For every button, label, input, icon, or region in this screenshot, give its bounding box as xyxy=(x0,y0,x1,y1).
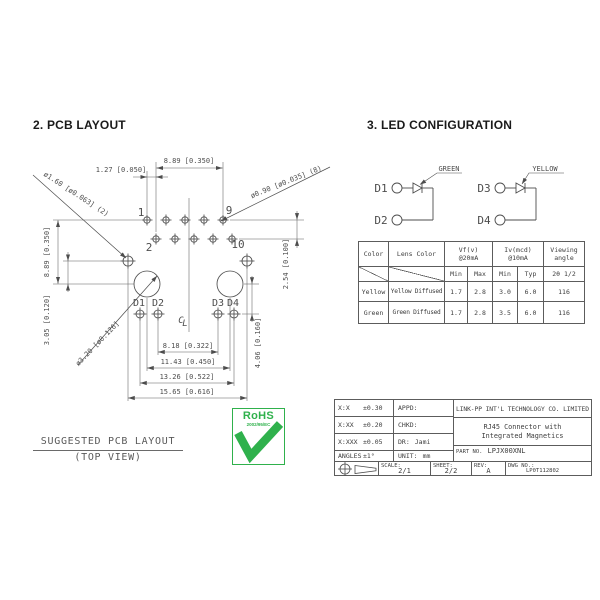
dim-hole-gap-label: 3.05 [0.120] xyxy=(43,295,51,346)
tol-label: X:XX xyxy=(338,421,363,429)
subheader-vf-min: Min xyxy=(445,267,468,282)
dim-led-drop-label: 4.06 [0.160] xyxy=(254,318,262,369)
d2-circuit-label: D2 xyxy=(374,214,387,227)
led-section-title: 3. LED CONFIGURATION xyxy=(367,118,512,132)
dim-pad-hole-label: ø0.90 [ø0.035] (8) xyxy=(250,164,323,200)
part-number-value: LPJX00XNL xyxy=(488,447,526,455)
row-yellow-lens: Yellow Diffused xyxy=(389,282,445,302)
pin-pads-row2 xyxy=(151,234,238,245)
dim-small-hole-label: ø1.60 [ø0.063] (2) xyxy=(42,170,110,218)
centerline-l: L xyxy=(182,319,187,329)
viewing-label: Viewing xyxy=(550,246,577,254)
d4-circuit-label: D4 xyxy=(477,214,491,227)
dimension-lines xyxy=(53,162,304,401)
tol-label: ANGLES xyxy=(338,452,363,460)
d3-pad-label: D3 xyxy=(212,298,224,309)
dr-value: Jami xyxy=(415,438,431,446)
led-characteristics-table: Color Lens Color Vf(v) @20mA Iv(mcd) @10… xyxy=(358,241,585,324)
col-header-lens-color: Lens Color xyxy=(389,242,445,267)
leader-lines xyxy=(33,167,330,365)
pin2-label: 2 xyxy=(146,241,153,254)
col-header-color: Color xyxy=(359,242,389,267)
vf-condition: @20mA xyxy=(459,254,479,262)
tol-value: ±0.30 xyxy=(363,404,383,412)
dim-left-span-label: 8.89 [0.350] xyxy=(43,227,51,278)
row-yellow-iv-min: 3.0 xyxy=(493,282,518,302)
subheader-iv-typ: Typ xyxy=(518,267,544,282)
part-number-cell: PART NO.LPJX00XNL xyxy=(454,446,591,461)
rohs-logo: RoHS 2002/95/EC xyxy=(232,408,285,465)
product-description: RJ45 Connector with Integrated Magnetics xyxy=(454,418,591,446)
col-header-iv: Iv(mcd) @10mA xyxy=(493,242,544,267)
dr-label: DR: xyxy=(398,438,410,446)
leader-post-hole xyxy=(78,276,157,365)
dim-row-pitch-label: 2.54 [0.100] xyxy=(282,239,290,290)
row-yellow-color: Yellow xyxy=(359,282,389,302)
dim-post-hole-label: ø3.20 [ø0.126] xyxy=(74,320,121,368)
leader-small-hole xyxy=(33,175,126,258)
tolerance-row-1: X:X±0.30 xyxy=(335,400,394,417)
centerline-c: C xyxy=(178,316,184,326)
row-yellow-angle: 116 xyxy=(544,282,584,302)
leader-pad-hole xyxy=(221,167,330,221)
tol-label: X:XXX xyxy=(338,438,363,446)
company-name: LINK-PP INT'L TECHNOLOGY CO. LIMITED xyxy=(454,400,591,418)
tol-value: ±0.20 xyxy=(363,421,383,429)
dim-led-outer-label: 13.26 [0.522] xyxy=(160,373,215,381)
tolerance-row-3: X:XXX±0.05 xyxy=(335,434,394,451)
dim-led-inner-label: 8.18 [0.322] xyxy=(163,342,214,350)
d4-pad-label: D4 xyxy=(227,298,239,309)
subheader-vf-max: Max xyxy=(468,267,493,282)
green-label: GREEN xyxy=(438,165,459,173)
unit-cell: UNIT:mm xyxy=(394,451,454,461)
pin1-label: 1 xyxy=(138,206,145,219)
dwg-no-cell: DWG NO.:LP0T112802 xyxy=(506,461,591,475)
diagonal-blank-cell xyxy=(359,267,389,282)
row-green-angle: 116 xyxy=(544,302,584,323)
pin-number-labels: 1 2 9 10 xyxy=(138,204,245,254)
pcb-drawing xyxy=(121,198,255,332)
datasheet-page: { "sections": { "pcb_title": "2. PCB LAY… xyxy=(0,0,600,600)
pin9-label: 9 xyxy=(226,204,233,217)
led-circuit-yellow xyxy=(495,173,564,225)
pcb-caption-line2: (TOP VIEW) xyxy=(33,452,183,463)
tol-value: ±0.05 xyxy=(363,438,383,446)
projection-symbol-cell xyxy=(335,461,379,475)
subheader-iv-min: Min xyxy=(493,267,518,282)
unit-label: UNIT: xyxy=(398,452,418,460)
iv-label: Iv(mcd) xyxy=(504,246,531,254)
chkd-label: CHKD: xyxy=(398,421,418,429)
dimension-arrows xyxy=(58,168,297,398)
d1-pad-label: D1 xyxy=(133,298,145,309)
d3-circuit-label: D3 xyxy=(477,182,490,195)
rev-cell: REV:A xyxy=(472,461,506,475)
led-pad-labels: D1 D2 D3 D4 xyxy=(133,298,239,309)
diode-icon xyxy=(516,183,525,193)
dim-top-span-label: 8.89 [0.350] xyxy=(164,157,215,165)
vf-label: Vf(v) xyxy=(459,246,479,254)
row-green-lens: Green Diffused xyxy=(389,302,445,323)
pin10-label: 10 xyxy=(231,238,244,251)
angle-label: angle xyxy=(554,254,574,262)
led-pads xyxy=(134,308,241,321)
tolerance-row-4: ANGLES±1° xyxy=(335,451,394,461)
small-locating-holes xyxy=(121,254,255,269)
d2-pad-label: D2 xyxy=(152,298,164,309)
pcb-caption-line1: SUGGESTED PCB LAYOUT xyxy=(33,436,183,451)
dimension-labels: 8.89 [0.350] 1.27 [0.050] 8.89 [0.350] 3… xyxy=(42,157,323,396)
dwg-no-value: LP0T112802 xyxy=(526,468,559,474)
product-line1: RJ45 Connector with xyxy=(454,423,591,432)
appd-label: APPD: xyxy=(398,404,418,412)
rev-value: A xyxy=(472,467,505,475)
sheet-value: 2/2 xyxy=(431,467,471,475)
scale-cell: SCALE:2/1 xyxy=(379,461,431,475)
row-green-color: Green xyxy=(359,302,389,323)
led-circuit-labels: D1 D2 D3 D4 xyxy=(374,182,491,227)
pcb-caption: SUGGESTED PCB LAYOUT (TOP VIEW) xyxy=(33,436,183,463)
tol-label: X:X xyxy=(338,404,363,412)
part-number-label: PART NO. xyxy=(456,449,483,455)
row-green-iv-typ: 6.0 xyxy=(518,302,544,323)
row-yellow-iv-typ: 6.0 xyxy=(518,282,544,302)
appd-cell: APPD: xyxy=(394,400,454,417)
diode-icon xyxy=(413,183,422,193)
tol-value: ±1° xyxy=(363,452,375,460)
tolerance-row-2: X:XX±0.20 xyxy=(335,417,394,434)
led-circuit-green xyxy=(392,173,462,225)
d1-circuit-label: D1 xyxy=(374,182,387,195)
yellow-label: YELLOW xyxy=(532,165,558,173)
subheader-2theta: 2θ 1/2 xyxy=(544,267,584,282)
dim-post-span-label: 11.43 [0.450] xyxy=(161,358,216,366)
row-yellow-vf-max: 2.8 xyxy=(468,282,493,302)
led-color-labels: GREEN YELLOW xyxy=(438,165,558,173)
centerline-symbol: C L xyxy=(178,316,187,329)
mounting-post-holes xyxy=(134,271,243,297)
col-header-vf: Vf(v) @20mA xyxy=(445,242,493,267)
rohs-checkmark-icon xyxy=(234,421,283,464)
pin-pads-row1 xyxy=(142,215,229,226)
dim-hole-span-label: 15.65 [0.616] xyxy=(160,388,215,396)
row-yellow-vf-min: 1.7 xyxy=(445,282,468,302)
scale-value: 2/1 xyxy=(379,467,430,475)
dim-row-offset-label: 1.27 [0.050] xyxy=(96,166,147,174)
dr-cell: DR:Jami xyxy=(394,434,454,451)
row-green-vf-min: 1.7 xyxy=(445,302,468,323)
row-green-vf-max: 2.8 xyxy=(468,302,493,323)
unit-value: mm xyxy=(423,452,431,460)
product-line2: Integrated Magnetics xyxy=(454,432,591,441)
row-green-iv-min: 3.5 xyxy=(493,302,518,323)
title-block: X:X±0.30 X:XX±0.20 X:XXX±0.05 ANGLES±1° … xyxy=(334,399,592,476)
pcb-section-title: 2. PCB LAYOUT xyxy=(33,118,126,132)
iv-condition: @10mA xyxy=(508,254,528,262)
chkd-cell: CHKD: xyxy=(394,417,454,434)
col-header-viewing-angle: Viewing angle xyxy=(544,242,584,267)
sheet-cell: SHEET:2/2 xyxy=(431,461,472,475)
diagonal-blank-cell xyxy=(389,267,445,282)
